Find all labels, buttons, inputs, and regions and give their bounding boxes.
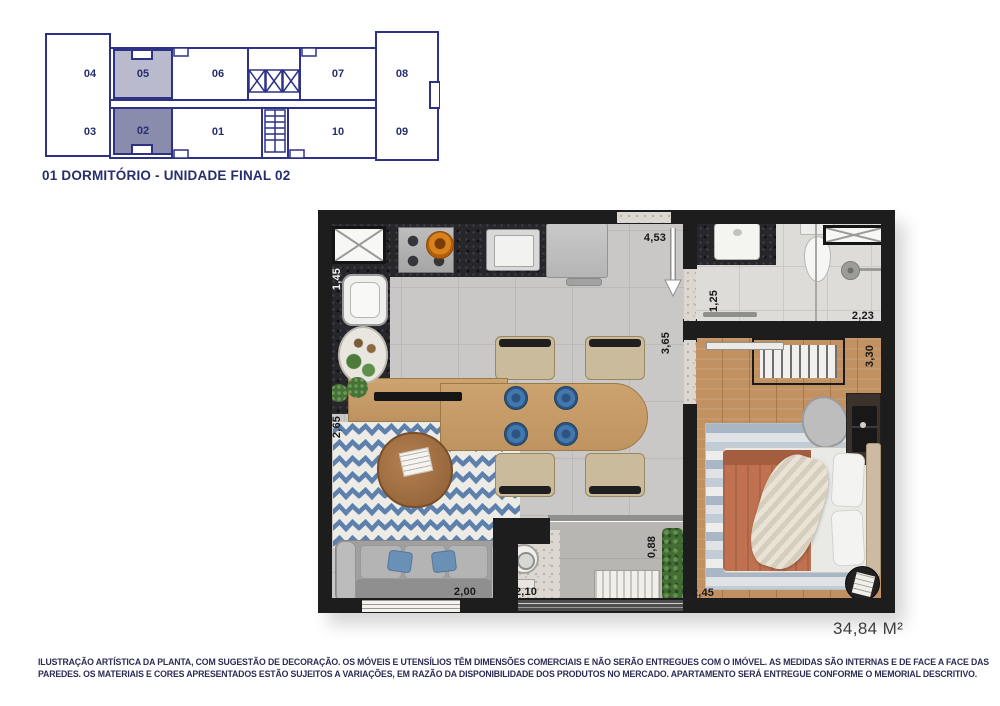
disclaimer: ILUSTRAÇÃO ARTÍSTICA DA PLANTA, COM SUGE… xyxy=(38,657,989,680)
sofa-arm-left xyxy=(336,541,356,603)
sofa xyxy=(335,540,510,602)
key-plan-unit-01: 01 xyxy=(212,126,224,138)
plate-1 xyxy=(504,386,528,410)
sofa-pillow-1 xyxy=(387,549,414,573)
hedge xyxy=(662,528,683,600)
side-table xyxy=(845,566,880,601)
dim-laundry: 2,10 xyxy=(515,586,537,598)
headboard xyxy=(866,443,881,577)
disclaimer-line-1: ILUSTRAÇÃO ARTÍSTICA DA PLANTA, COM SUGE… xyxy=(38,657,989,669)
shaft-box-left xyxy=(332,226,386,264)
living-window xyxy=(360,600,462,612)
dim-entry: 4,53 xyxy=(644,232,666,244)
plan-title: 01 DORMITÓRIO - UNIDADE FINAL 02 xyxy=(42,168,290,183)
dim-bath-entry: 1,25 xyxy=(708,290,720,312)
key-plan: 04 05 06 07 08 03 02 01 10 09 xyxy=(40,30,440,165)
sofa-pillow-2 xyxy=(431,550,457,574)
wall-top xyxy=(318,210,895,224)
console-plant-1 xyxy=(330,384,348,402)
dim-closet: 3,30 xyxy=(864,345,876,367)
key-plan-unit-08: 08 xyxy=(396,68,408,80)
wall-left xyxy=(318,210,332,613)
plate-4 xyxy=(554,422,578,446)
dim-balcony: 0,88 xyxy=(646,536,658,558)
shaft-box-right xyxy=(823,225,885,245)
dining-chair-4 xyxy=(585,453,645,497)
coffee-table-papers xyxy=(399,447,433,477)
floor-plan: 4,53 1,45 1,25 2,23 3,65 3,30 2,65 2,00 … xyxy=(318,210,895,613)
entry-threshold xyxy=(617,212,671,223)
round-basin xyxy=(342,274,388,326)
dim-kitchen-side: 1,45 xyxy=(331,268,343,290)
area-label: 34,84 M² xyxy=(833,619,903,639)
console-plant-2 xyxy=(347,377,368,398)
shower-partition xyxy=(815,218,817,322)
key-plan-unit-02: 02 xyxy=(137,125,149,137)
x-mark-icon xyxy=(826,228,882,242)
key-plan-unit-07: 07 xyxy=(332,68,344,80)
pillow-2 xyxy=(831,509,866,567)
page: 04 05 06 07 08 03 02 01 10 09 01 DORMITÓ… xyxy=(0,0,1000,706)
key-plan-drawing xyxy=(40,30,440,165)
dining-chair-3 xyxy=(495,453,555,497)
plate-2 xyxy=(554,386,578,410)
coffee-table xyxy=(377,432,453,508)
sliding-door-frame xyxy=(548,515,695,522)
key-plan-unit-10: 10 xyxy=(332,126,344,138)
key-plan-unit-05: 05 xyxy=(137,68,149,80)
decor-plate xyxy=(338,326,388,384)
x-mark-icon xyxy=(335,229,383,261)
shower-head xyxy=(841,261,860,280)
wall-bath-bedroom xyxy=(683,321,895,338)
key-plan-unit-06: 06 xyxy=(212,68,224,80)
dim-sofa: 2,00 xyxy=(454,586,476,598)
wall-bath-upper xyxy=(683,210,697,269)
stairs-icon xyxy=(265,110,285,152)
wall-right xyxy=(881,210,895,613)
dining-table xyxy=(440,383,648,451)
pillow-1 xyxy=(831,452,866,508)
fridge-handle xyxy=(566,278,602,286)
key-plan-unit-03: 03 xyxy=(84,126,96,138)
pot xyxy=(426,231,454,259)
dim-living-width: 2,65 xyxy=(331,416,343,438)
dim-bath-width: 2,23 xyxy=(852,310,874,322)
elevator-icon xyxy=(249,70,299,92)
dim-bedroom: 2,45 xyxy=(692,587,714,599)
bedroom-door-leaf xyxy=(706,342,784,350)
bedroom-door-threshold xyxy=(684,340,696,404)
balcony-railing xyxy=(518,600,683,611)
bath-door-threshold xyxy=(684,269,696,321)
dining-chair-2 xyxy=(585,336,645,380)
dim-living-depth: 3,65 xyxy=(660,332,672,354)
laptop-logo xyxy=(860,422,866,428)
wall-bedroom-left xyxy=(683,404,697,598)
side-table-book xyxy=(852,572,876,597)
ac-unit xyxy=(594,570,660,600)
plate-3 xyxy=(504,422,528,446)
tv xyxy=(374,392,462,401)
kitchen-sink xyxy=(486,229,540,271)
bath-sink xyxy=(714,223,760,260)
disclaimer-line-2: PAREDES. OS MATERIAIS E CORES APRESENTAD… xyxy=(38,669,989,681)
key-plan-unit-09: 09 xyxy=(396,126,408,138)
dining-chair-1 xyxy=(495,336,555,380)
fridge xyxy=(546,223,608,278)
shower-arm xyxy=(858,268,881,271)
key-plan-unit-04: 04 xyxy=(84,68,96,80)
towel-bar xyxy=(703,312,757,317)
